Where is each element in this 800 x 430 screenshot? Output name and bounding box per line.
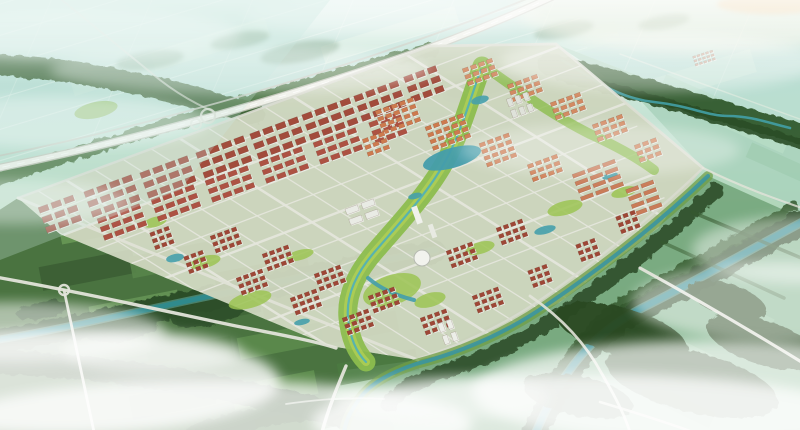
fog-9 (330, 376, 550, 420)
cloud-7 (460, 124, 740, 176)
fog-4 (62, 332, 242, 372)
civic-dome (414, 250, 430, 266)
scene-layers (0, 0, 800, 430)
scene-canvas (0, 0, 800, 430)
aerial-masterplan-rendering (0, 0, 800, 430)
